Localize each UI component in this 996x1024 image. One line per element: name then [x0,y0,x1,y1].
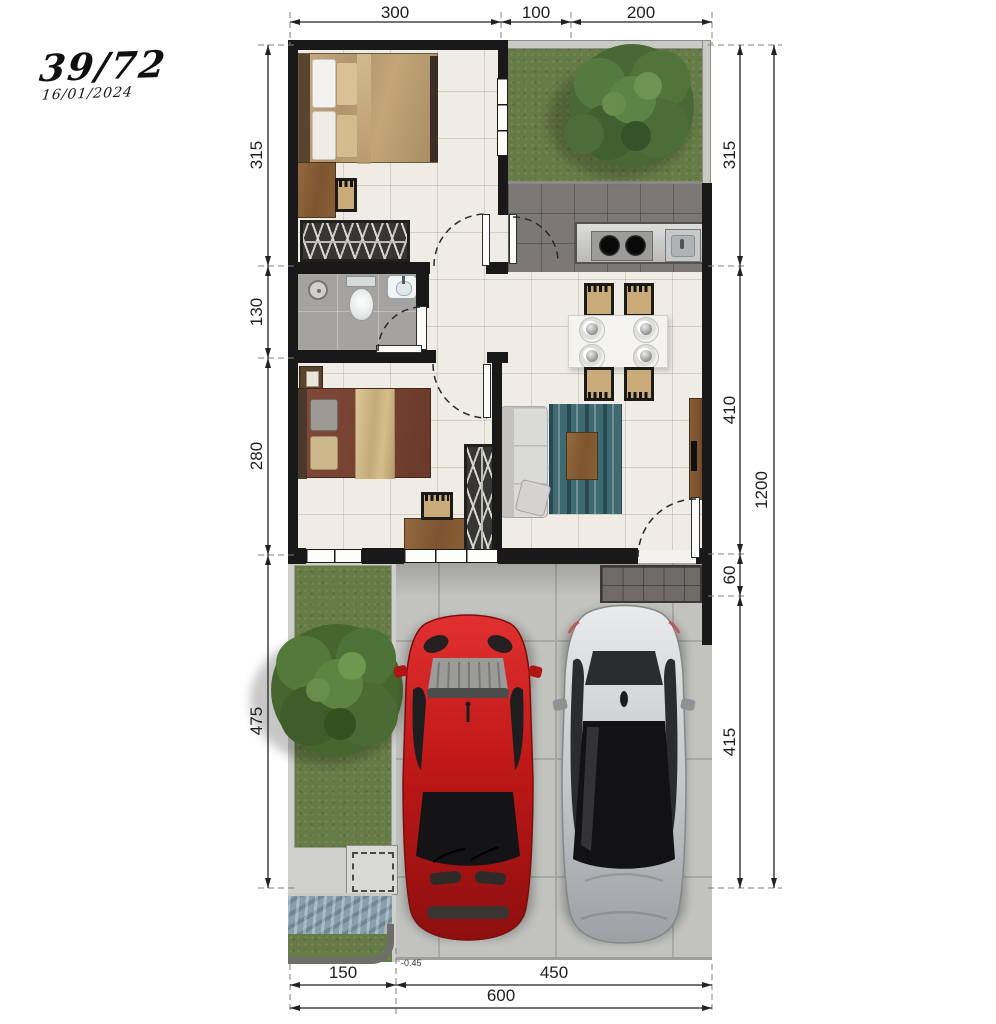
shower-drain [317,289,321,293]
dim-left-1: 315 [247,141,267,169]
pillow [312,59,336,108]
dining-chair [624,283,654,317]
pillow [336,62,358,106]
dim-bottom-1: 150 [329,963,357,983]
carport-edge [396,957,712,960]
garden-grass [508,44,702,183]
carport-slab [396,563,712,960]
door-leaf-kitchen [509,214,517,264]
dim-right-1: 315 [720,141,740,169]
dim-left-2: 130 [247,298,267,326]
master-bed-headboard [299,54,310,164]
wardrobe-rail [481,447,483,551]
window [497,78,508,156]
bathroom-sink [386,274,418,300]
wall [498,548,638,564]
street-curb [288,924,394,964]
stove [591,231,653,261]
wall [288,548,306,564]
wall [362,548,404,564]
wall [416,274,429,308]
door-leaf-bathroom [416,306,427,350]
desk-2-chair [421,492,453,520]
desk [296,162,336,218]
wall [288,40,298,563]
faucet [680,239,684,249]
desk-2 [404,518,466,552]
dim-right-4: 415 [720,728,740,756]
window [306,549,362,563]
bed-2 [296,388,431,478]
kitchen-counter [575,222,705,264]
duvet-fold [357,54,371,164]
garden-kitchen-edge [508,181,702,184]
dim-bottom-2: 450 [540,963,568,983]
bed-2-headboard [297,389,307,479]
window [404,549,498,563]
shower-head [308,280,328,300]
master-bed [298,53,438,163]
dim-right-total: 1200 [752,471,772,509]
dim-bottom-total: 600 [487,986,515,1006]
dim-top-2: 100 [522,3,550,23]
utility-pad-marker [352,852,394,892]
dim-right-3: 60 [720,566,740,585]
dim-left-4: 475 [247,707,267,735]
plan-date: 16/01/2024 [41,84,134,103]
plan-title: 39/72 [37,42,169,90]
entry-terrace [600,565,702,603]
tv [691,441,697,471]
dim-right-2: 410 [720,396,740,424]
door-leaf-bedroom1 [482,214,490,266]
door-leaf-bedroom2 [483,364,491,418]
place-setting [633,317,659,343]
entry-door-opening [638,550,691,563]
burner [599,235,620,256]
burner [625,235,646,256]
door-threshold-bathroom [376,345,422,353]
wall [288,262,430,274]
garden-fence [702,40,711,185]
dining-chair [624,367,654,401]
nightstand [299,366,323,389]
front-yard-grass [294,565,392,848]
pillow [336,114,358,158]
blanket [355,389,395,479]
wall [288,40,508,50]
door-leaf-entry [691,497,700,558]
wall [702,183,712,645]
pillow [312,111,336,160]
dining-chair [584,367,614,401]
place-setting [579,317,605,343]
pillow [310,399,338,431]
wardrobe-rail [303,241,407,243]
wall [492,357,502,563]
wardrobe [300,220,410,262]
floor-plan-sheet: 39/72 16/01/2024 [0,0,996,1024]
desk-chair [335,178,357,212]
dining-chair [584,283,614,317]
garden-fence [506,40,704,49]
faucet [402,276,405,284]
kitchen-sink [665,229,701,262]
level-marker: -0.45 [401,958,422,968]
dim-top-3: 200 [627,3,655,23]
dim-left-3: 280 [247,442,267,470]
toilet-bowl [349,288,374,321]
bed-footboard [430,56,438,162]
toilet-tank [346,276,376,287]
pillow [310,436,338,470]
lamp [306,371,319,387]
dining-table [568,315,668,368]
coffee-table [566,432,598,480]
dim-top-1: 300 [381,3,409,23]
